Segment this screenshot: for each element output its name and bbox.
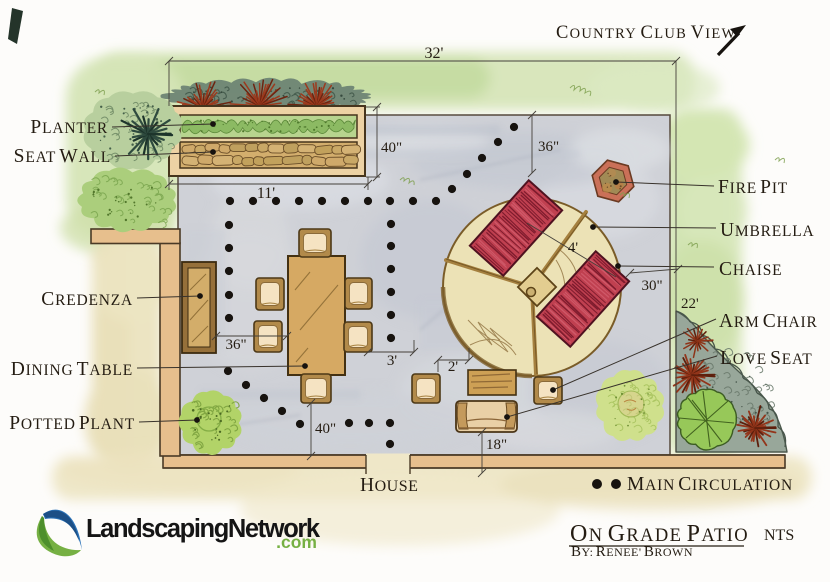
svg-text:2': 2' <box>448 359 459 375</box>
svg-text:ARM CHAIR: ARM CHAIR <box>719 311 818 332</box>
svg-text:HOUSE: HOUSE <box>360 475 418 496</box>
svg-text:POTTED PLANT: POTTED PLANT <box>9 413 135 434</box>
svg-text:11': 11' <box>257 185 275 202</box>
svg-text:36": 36" <box>538 139 559 155</box>
svg-text:36": 36" <box>225 337 246 353</box>
svg-text:40": 40" <box>381 140 402 156</box>
svg-text:SEAT WALL: SEAT WALL <box>14 146 111 167</box>
svg-text:FIRE PIT: FIRE PIT <box>718 177 788 198</box>
svg-text:BY: RENEE' BROWN: BY: RENEE' BROWN <box>571 544 693 560</box>
svg-text:.com: .com <box>276 532 317 552</box>
svg-text:40": 40" <box>315 421 336 437</box>
svg-text:LOVE SEAT: LOVE SEAT <box>720 348 813 369</box>
svg-text:CREDENZA: CREDENZA <box>41 289 133 310</box>
svg-text:18": 18" <box>486 437 507 453</box>
svg-text:MAIN CIRCULATION: MAIN CIRCULATION <box>627 474 793 495</box>
svg-text:NTS: NTS <box>764 527 794 544</box>
svg-text:3': 3' <box>387 353 398 369</box>
svg-text:30": 30" <box>641 278 662 294</box>
svg-text:UMBRELLA: UMBRELLA <box>720 220 815 241</box>
svg-text:CHAISE: CHAISE <box>719 259 782 280</box>
svg-text:22': 22' <box>681 296 699 312</box>
svg-text:4': 4' <box>568 240 579 256</box>
svg-text:COUNTRY CLUB VIEW: COUNTRY CLUB VIEW <box>556 23 737 43</box>
svg-text:32': 32' <box>425 45 444 62</box>
svg-text:PLANTER: PLANTER <box>30 117 108 138</box>
svg-text:DINING TABLE: DINING TABLE <box>11 359 133 380</box>
